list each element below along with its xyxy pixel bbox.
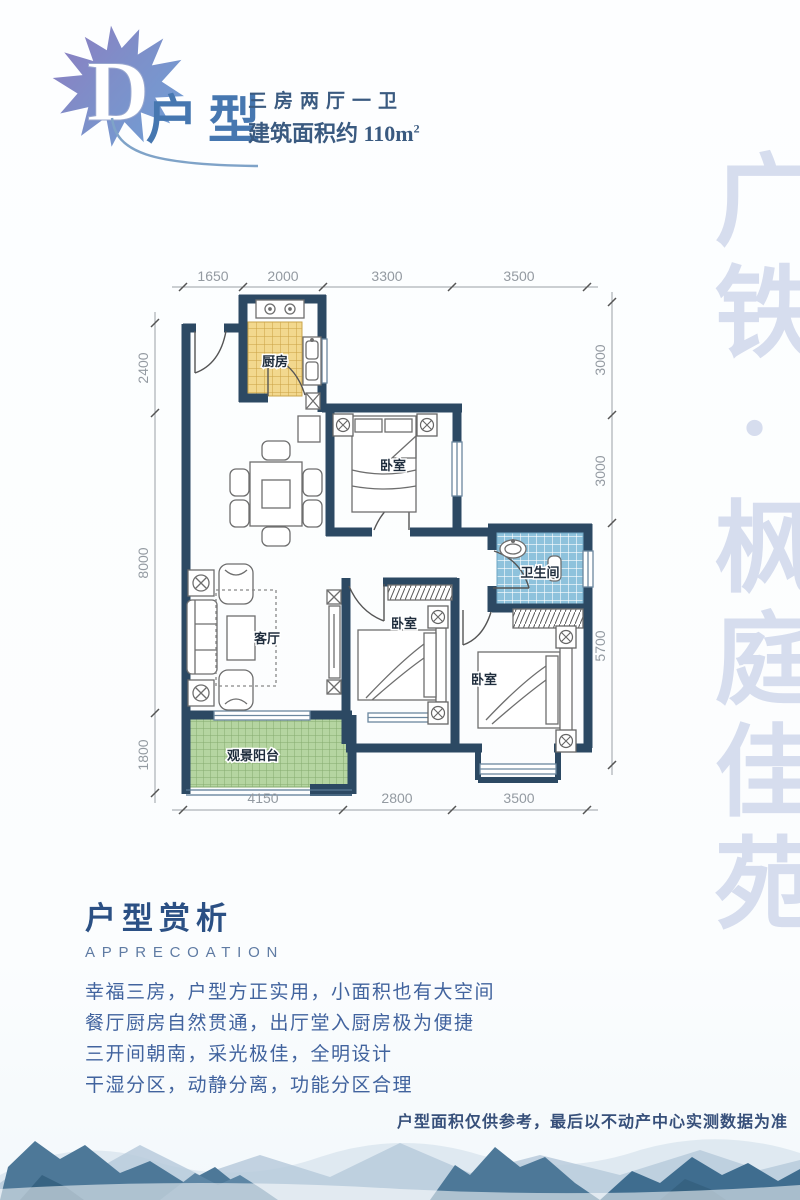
project-name-watermark: 广铁·枫庭佳苑: [704, 148, 800, 943]
label-bedroom-right: 卧室: [471, 672, 497, 687]
stove: [256, 300, 304, 318]
svg-text:2400: 2400: [135, 352, 151, 383]
sofa-set: [187, 564, 255, 710]
svg-text:2000: 2000: [267, 268, 298, 284]
appreciation-line: 三开间朝南，采光极佳，全明设计: [85, 1039, 495, 1070]
svg-text:3500: 3500: [503, 268, 534, 284]
appreciation-line: 餐厅厨房自然贯通，出厅堂入厨房极为便捷: [85, 1008, 495, 1039]
appreciation-title: 户型赏析: [85, 893, 495, 938]
svg-text:2800: 2800: [381, 790, 412, 806]
bedroom-mid-door: [349, 584, 384, 621]
square-sup: 2: [414, 122, 420, 136]
bedroom-mid-window: [368, 713, 430, 722]
unit-subtitle-block: 三房两厅一卫 建筑面积约 110m2: [248, 86, 420, 148]
entry-door: [195, 331, 226, 373]
balcony-slider: [214, 711, 310, 720]
appreciation-lines: 幸福三房，户型方正实用，小面积也有大空间 餐厅厨房自然贯通，出厅堂入厨房极为便捷…: [85, 977, 495, 1101]
svg-text:5700: 5700: [592, 630, 608, 661]
appreciation-subtitle: APPRECOATION: [85, 944, 495, 961]
kitchen-sink: [303, 337, 321, 385]
wardrobe-mid: [388, 585, 452, 600]
dining-table: [230, 441, 322, 546]
svg-text:8000: 8000: [135, 547, 151, 578]
svg-text:1650: 1650: [197, 268, 228, 284]
appreciation-section: 户型赏析 APPRECOATION 幸福三房，户型方正实用，小面积也有大空间 餐…: [85, 893, 495, 1101]
svg-text:3000: 3000: [592, 455, 608, 486]
svg-text:3000: 3000: [592, 344, 608, 375]
bathroom-window: [583, 551, 593, 587]
label-balcony: 观景阳台: [227, 748, 279, 763]
bed-right: [478, 648, 572, 732]
bedroom-top-window: [452, 442, 462, 496]
bed-middle: [358, 628, 446, 702]
unit-letter: D: [87, 43, 149, 139]
dining-cabinet: [298, 416, 320, 442]
label-living: 客厅: [254, 631, 280, 646]
svg-text:3500: 3500: [503, 790, 534, 806]
bedroom-right-door: [463, 610, 491, 645]
tv-cabinet: [327, 590, 341, 694]
label-bathroom: 卫生间: [520, 565, 559, 580]
svg-text:3300: 3300: [371, 268, 402, 284]
wardrobe-right: [513, 609, 583, 628]
label-bedroom-top: 卧室: [380, 458, 406, 473]
appreciation-line: 干湿分区，动静分离，功能分区合理: [85, 1070, 495, 1101]
label-kitchen: 厨房: [262, 354, 288, 369]
svg-text:4150: 4150: [247, 790, 278, 806]
bath-sink: [500, 540, 526, 558]
disclaimer-text: 户型面积仅供参考，最后以不动产中心实测数据为准: [397, 1108, 788, 1132]
floorplan: 厨房 卧室 卫生间 卧室 卧室 客厅 观景阳台 1650 2000 3300 3…: [130, 240, 650, 840]
label-bedroom-middle: 卧室: [391, 616, 417, 631]
rooms-line: 三房两厅一卫: [248, 86, 420, 113]
appreciation-line: 幸福三房，户型方正实用，小面积也有大空间: [85, 977, 495, 1008]
bay-window: [480, 764, 556, 774]
svg-text:1800: 1800: [135, 739, 151, 770]
area-line: 建筑面积约 110m2: [248, 116, 420, 148]
